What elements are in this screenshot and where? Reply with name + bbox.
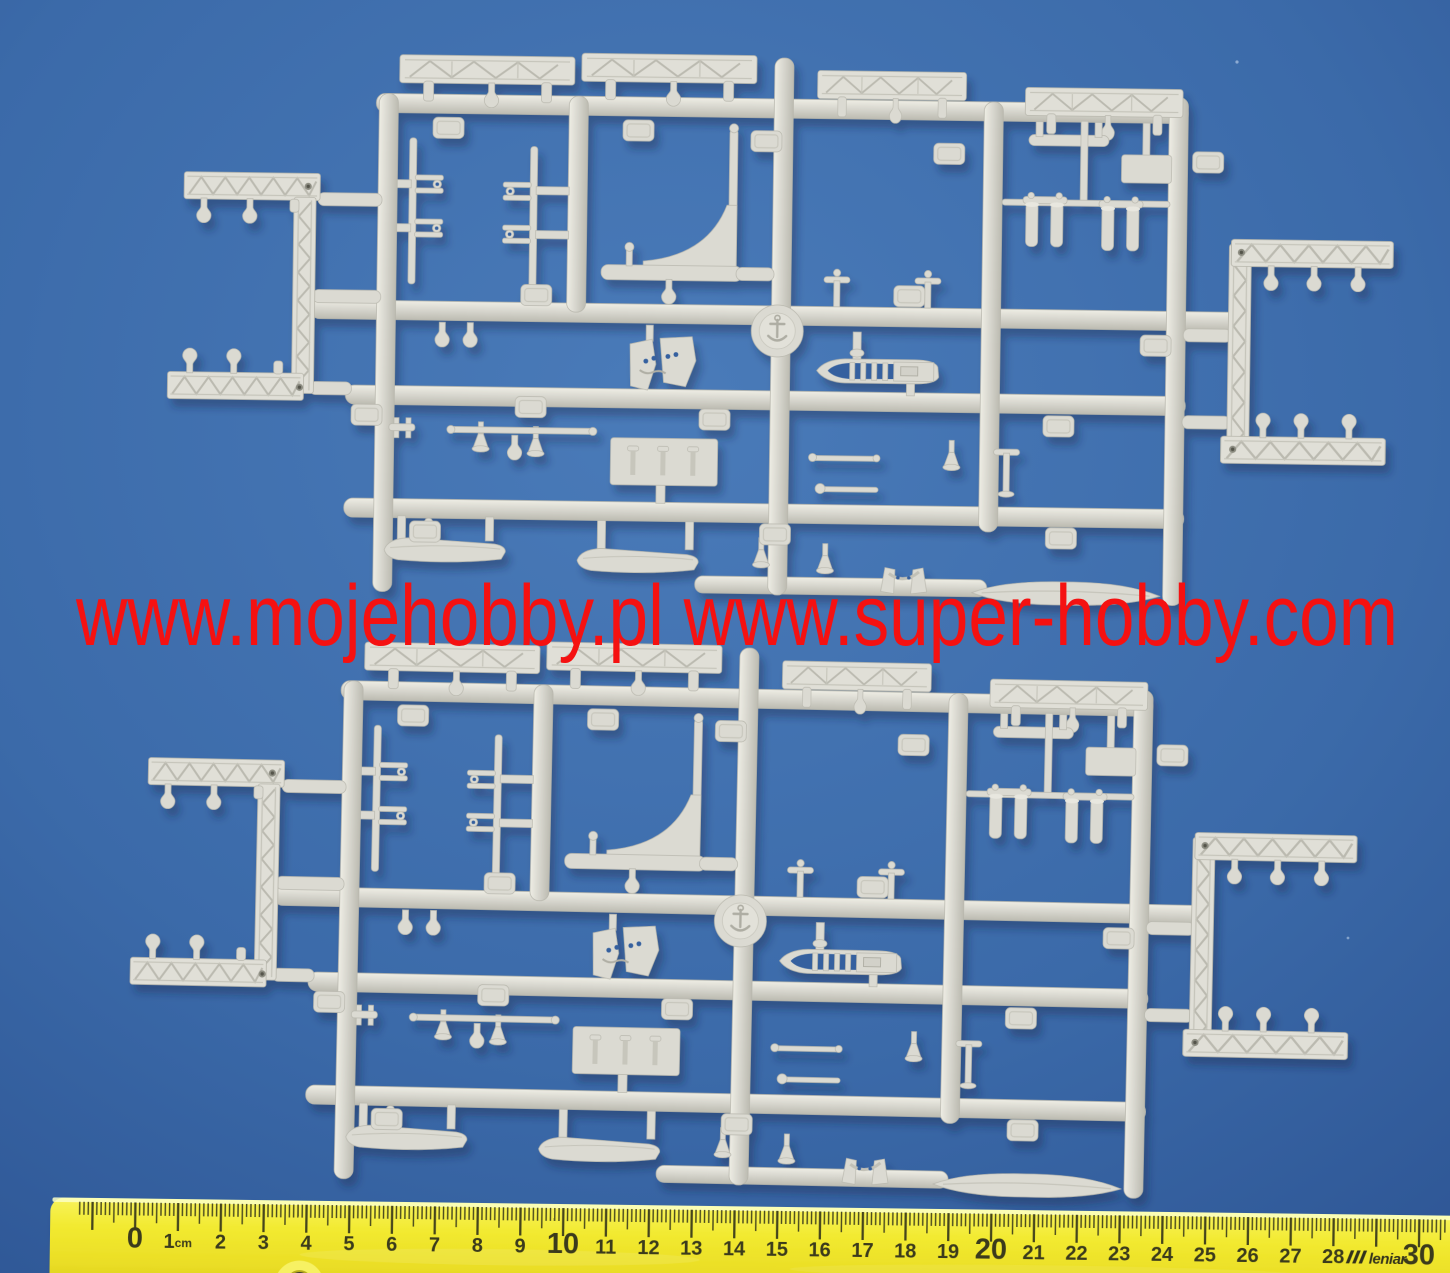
ruler-number: 20: [975, 1233, 1008, 1265]
ruler-number: 4: [300, 1233, 312, 1255]
ruler-number: 14: [723, 1238, 746, 1260]
ruler-number: 7: [429, 1234, 440, 1256]
dust-speck: [1347, 937, 1350, 940]
ruler-number: 21: [1022, 1242, 1045, 1264]
ruler-number: 25: [1194, 1244, 1217, 1266]
ruler-number: 8: [472, 1235, 483, 1257]
photo-scene: www.mojehobby.pl www.super-hobby.com 01c…: [0, 0, 1450, 1273]
ruler-number: 17: [851, 1240, 874, 1262]
ruler-number: 28: [1322, 1246, 1345, 1268]
ruler-number: 10: [547, 1228, 580, 1260]
ruler-number: 16: [808, 1239, 831, 1261]
dust-speck: [1235, 60, 1238, 63]
watermark-text: www.mojehobby.pl www.super-hobby.com: [75, 568, 1398, 664]
ruler-number: 5: [343, 1233, 354, 1255]
ruler-number: 9: [514, 1235, 525, 1257]
ruler-number: 3: [258, 1232, 269, 1254]
ruler-number: 18: [894, 1240, 917, 1262]
ruler-number: 24: [1151, 1244, 1174, 1266]
ruler-number: 0: [127, 1222, 144, 1254]
ruler-number: 26: [1236, 1245, 1259, 1267]
ruler-number: 23: [1108, 1243, 1131, 1265]
ruler-number: 6: [386, 1234, 397, 1256]
ruler-number: 15: [766, 1239, 789, 1261]
ruler-number: 13: [680, 1238, 703, 1260]
ruler-brand-text: leniar: [1369, 1251, 1408, 1269]
ruler-number: 27: [1279, 1245, 1302, 1267]
ruler-number: 30: [1403, 1239, 1436, 1271]
ruler-number: 12: [637, 1237, 660, 1259]
ruler-number: 22: [1065, 1243, 1088, 1265]
ruler-number: 11: [595, 1236, 616, 1258]
ruler-number: 2: [215, 1232, 226, 1254]
sprue-photo: www.mojehobby.pl www.super-hobby.com 01c…: [0, 0, 1450, 1273]
ruler-number: 19: [937, 1241, 960, 1263]
